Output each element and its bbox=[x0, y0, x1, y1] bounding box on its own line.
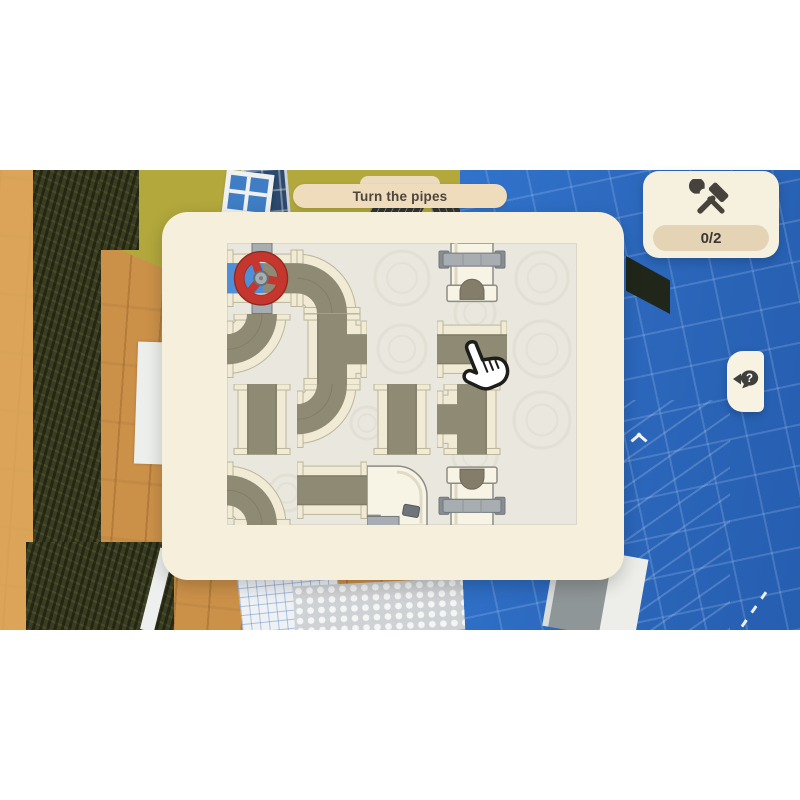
pipe-tile-straight-r3c1[interactable] bbox=[297, 455, 367, 526]
pipe-tile-elbow-r1c0[interactable] bbox=[227, 314, 297, 385]
pipe-tile-elbow-white-r3c2 bbox=[367, 455, 437, 526]
question-bubble-icon: ? bbox=[732, 367, 759, 396]
letterbox-top bbox=[0, 0, 800, 170]
pipe-tile-straight-r2c2[interactable] bbox=[367, 384, 437, 455]
blueprint-mark bbox=[630, 432, 646, 444]
letterbox-bottom bbox=[0, 630, 800, 800]
pipe-tile-elbow-r3c0[interactable] bbox=[227, 455, 297, 526]
pipe-tile-straight-r1c3[interactable] bbox=[437, 314, 507, 385]
pipe-tile-tee-r1c1[interactable] bbox=[297, 314, 367, 385]
pipe-tile-start-valve-r0c0[interactable] bbox=[227, 243, 297, 314]
pipe-tile-end-cap-r3c3 bbox=[437, 455, 507, 526]
pipe-tile-elbow-r0c1[interactable] bbox=[297, 243, 367, 314]
pipe-tile-elbow-r2c1[interactable] bbox=[297, 384, 367, 455]
hammer-wrench-icon bbox=[689, 179, 733, 226]
hint-button[interactable]: ? bbox=[727, 351, 764, 412]
progress-panel: 0/2 bbox=[643, 171, 779, 258]
game-screen: Turn the pipes 0/2 bbox=[0, 0, 800, 800]
pipe-tile-tee-r2c3[interactable] bbox=[437, 384, 507, 455]
pipe-tile-straight-r2c0[interactable] bbox=[227, 384, 297, 455]
pipe-board bbox=[227, 243, 577, 525]
svg-text:?: ? bbox=[746, 373, 753, 385]
hedge-patch bbox=[99, 170, 139, 250]
progress-count-badge: 0/2 bbox=[653, 225, 769, 251]
pipe-tile-end-cap-r0c3 bbox=[437, 243, 507, 314]
objective-banner: Turn the pipes bbox=[293, 184, 507, 208]
